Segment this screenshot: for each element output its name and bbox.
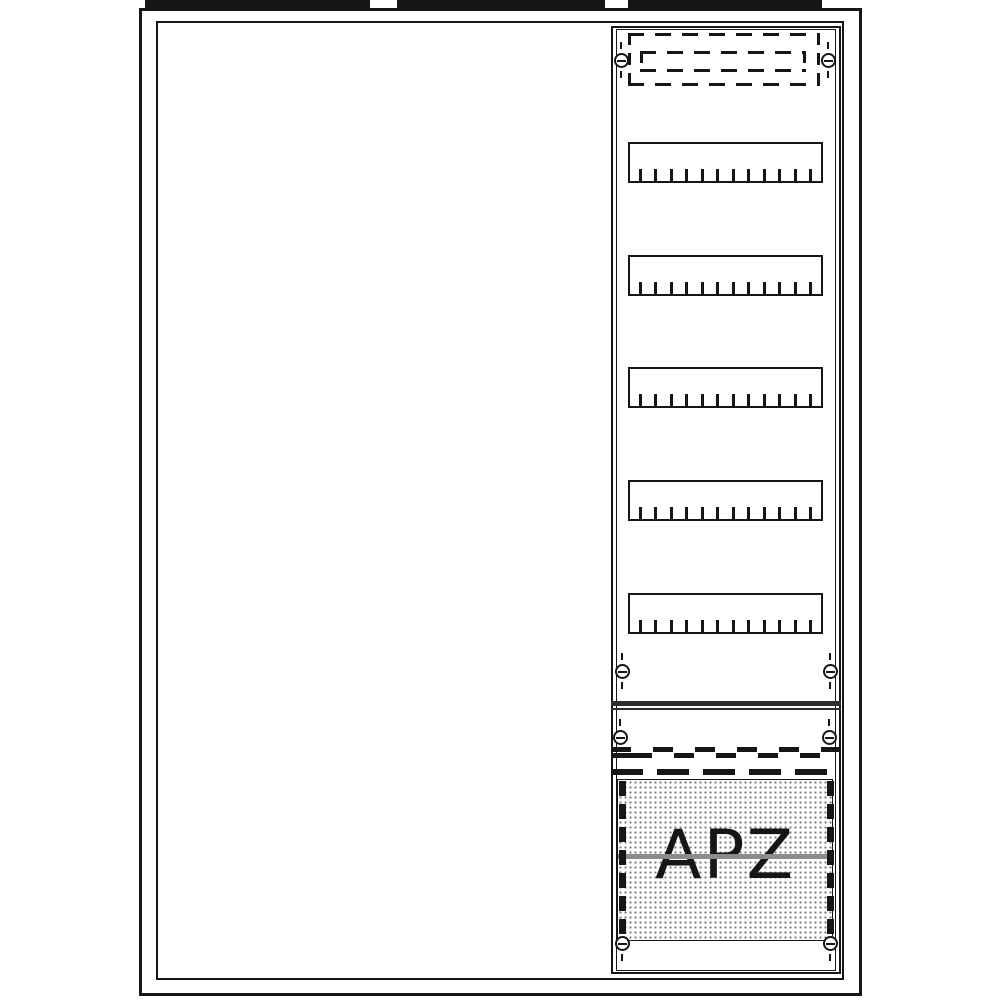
screw-alignment-dash	[620, 42, 622, 49]
module-tick	[685, 620, 688, 632]
screw-slot	[824, 60, 833, 62]
module-tick	[685, 282, 688, 294]
module-tick	[685, 507, 688, 519]
module-tick	[794, 620, 797, 632]
module-tick	[778, 507, 781, 519]
top-cover-dashed-edge	[628, 83, 820, 86]
screw-alignment-dash	[621, 954, 623, 961]
module-tick	[670, 169, 673, 181]
screw-slot	[826, 943, 835, 945]
din-rail-row	[628, 367, 823, 408]
din-rail-row	[628, 142, 823, 183]
module-tick	[763, 169, 766, 181]
module-tick	[639, 620, 642, 632]
module-tick	[654, 507, 657, 519]
module-tick	[685, 394, 688, 406]
cover-joint-dashes-lower	[611, 753, 841, 758]
module-tick	[716, 620, 719, 632]
module-tick	[809, 507, 812, 519]
screw-slot	[826, 671, 835, 673]
top-cover-inner-dashed-edge	[640, 51, 643, 72]
module-tick	[654, 282, 657, 294]
screw-alignment-dash	[619, 719, 621, 726]
module-tick	[639, 507, 642, 519]
module-tick	[778, 169, 781, 181]
module-tick	[794, 507, 797, 519]
module-tick	[747, 620, 750, 632]
module-tick	[732, 620, 735, 632]
screw-slot	[618, 671, 627, 673]
screw-icon	[821, 53, 836, 68]
top-cover-inner-dashed-edge	[803, 51, 806, 72]
module-tick	[809, 394, 812, 406]
module-tick	[763, 282, 766, 294]
screw-icon	[823, 936, 838, 951]
module-tick	[670, 394, 673, 406]
module-tick	[809, 282, 812, 294]
module-tick	[670, 282, 673, 294]
screw-icon	[615, 936, 630, 951]
section-divider-line	[611, 708, 841, 710]
screw-slot	[825, 737, 834, 739]
module-tick	[794, 394, 797, 406]
module-tick	[732, 507, 735, 519]
module-tick	[716, 394, 719, 406]
section-divider-line	[611, 701, 841, 706]
module-tick	[763, 620, 766, 632]
module-tick	[732, 169, 735, 181]
apz-field: APZ	[617, 779, 833, 941]
module-tick	[701, 507, 704, 519]
screw-alignment-dash	[829, 682, 831, 689]
module-tick	[654, 169, 657, 181]
module-tick	[747, 394, 750, 406]
apz-edge-dashes-right	[827, 781, 834, 939]
screw-alignment-dash	[829, 653, 831, 660]
screw-alignment-dash	[620, 71, 622, 78]
screw-icon	[614, 53, 629, 68]
apz-edge-dashes-left	[619, 781, 626, 939]
screw-slot	[617, 60, 626, 62]
din-rail-row	[628, 255, 823, 296]
module-tick	[763, 394, 766, 406]
top-cover-dashed-edge	[817, 33, 820, 86]
screw-alignment-dash	[828, 719, 830, 726]
module-tick	[778, 282, 781, 294]
module-tick	[794, 282, 797, 294]
module-tick	[732, 282, 735, 294]
module-tick	[747, 282, 750, 294]
screw-icon	[615, 664, 630, 679]
module-tick	[654, 620, 657, 632]
module-tick	[778, 394, 781, 406]
din-rail-row	[628, 593, 823, 634]
top-cover-dashed-edge	[628, 33, 820, 36]
apz-divider-line	[618, 854, 832, 859]
mounting-tab-right	[628, 0, 822, 8]
mounting-tab-center	[397, 0, 605, 8]
module-tick	[639, 394, 642, 406]
din-rail-row	[628, 480, 823, 521]
module-tick	[670, 620, 673, 632]
screw-icon	[822, 730, 837, 745]
screw-icon	[823, 664, 838, 679]
module-tick	[639, 282, 642, 294]
module-tick	[763, 507, 766, 519]
module-tick	[747, 507, 750, 519]
screw-alignment-dash	[829, 954, 831, 961]
module-tick	[701, 282, 704, 294]
module-tick	[794, 169, 797, 181]
module-tick	[732, 394, 735, 406]
screw-slot	[618, 943, 627, 945]
top-cover-inner-dashed-edge	[640, 69, 806, 72]
cabinet-diagram: APZ	[0, 0, 1000, 1000]
cover-joint-dashes-upper	[611, 747, 841, 752]
screw-alignment-dash	[621, 682, 623, 689]
module-tick	[685, 169, 688, 181]
screw-slot	[616, 737, 625, 739]
module-tick	[654, 394, 657, 406]
screw-alignment-dash	[827, 71, 829, 78]
module-tick	[701, 169, 704, 181]
module-tick	[809, 169, 812, 181]
module-tick	[778, 620, 781, 632]
module-tick	[701, 394, 704, 406]
screw-alignment-dash	[827, 42, 829, 49]
mounting-tab-left	[145, 0, 370, 8]
module-tick	[747, 169, 750, 181]
top-cover-inner-dashed-edge	[640, 51, 806, 54]
screw-icon	[613, 730, 628, 745]
module-tick	[639, 169, 642, 181]
module-tick	[716, 169, 719, 181]
module-tick	[670, 507, 673, 519]
screw-alignment-dash	[621, 653, 623, 660]
apz-cover-dashed-edge	[611, 769, 841, 775]
module-tick	[716, 507, 719, 519]
module-tick	[809, 620, 812, 632]
module-tick	[701, 620, 704, 632]
module-tick	[716, 282, 719, 294]
